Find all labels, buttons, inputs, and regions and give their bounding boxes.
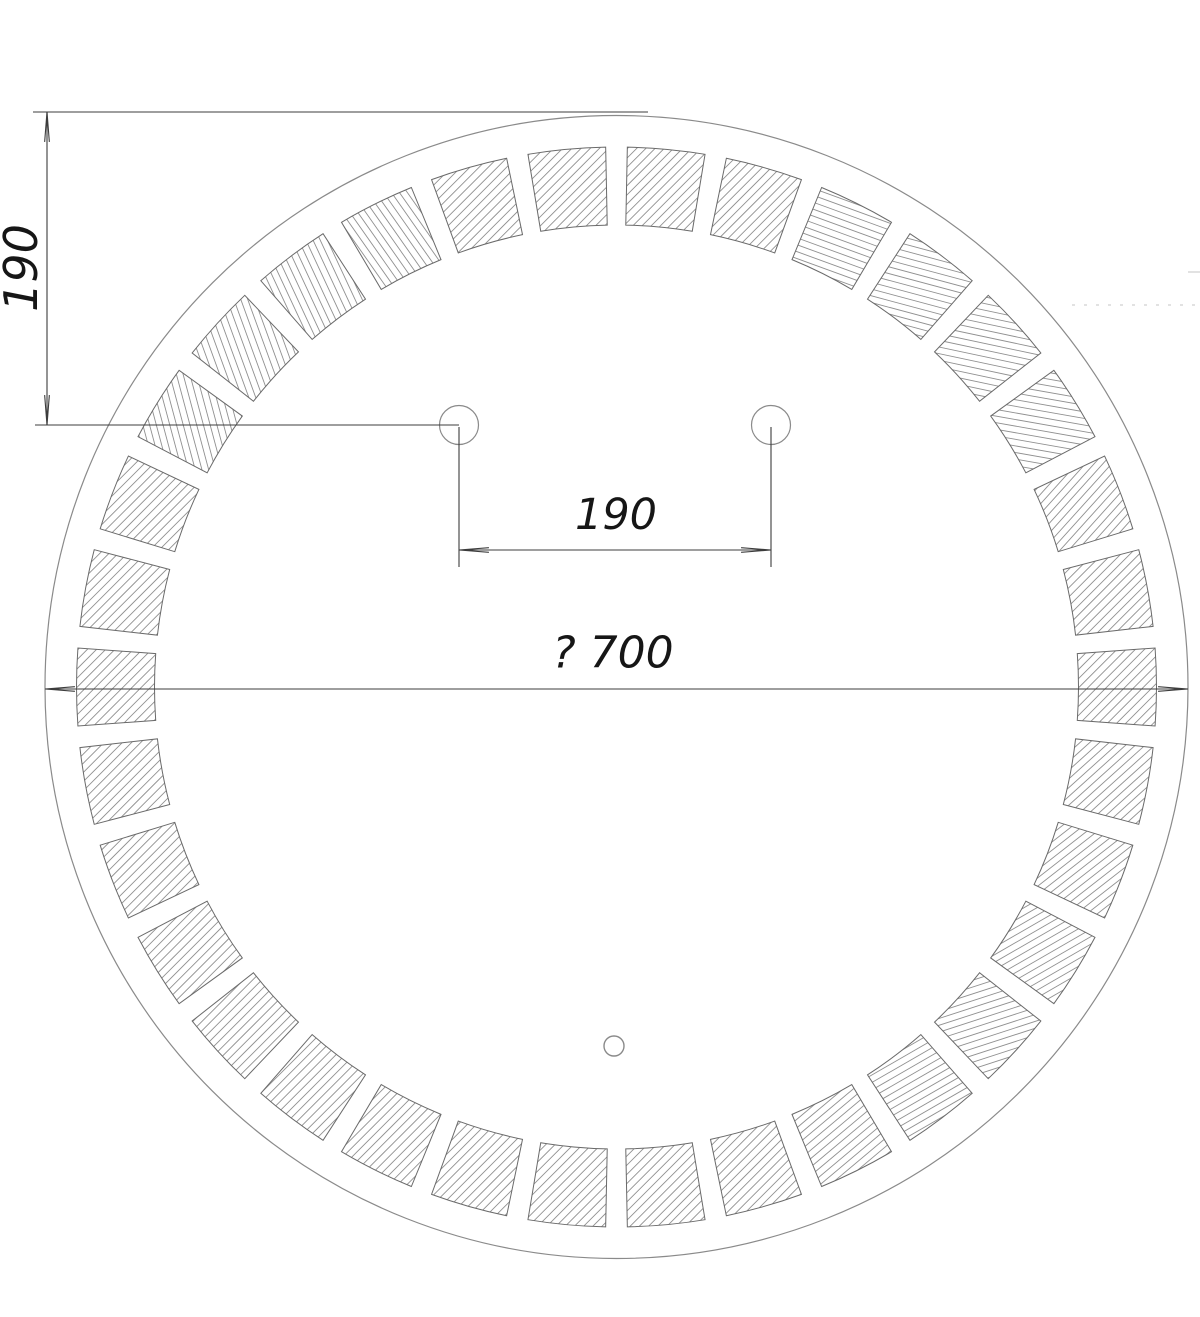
led-segment [159,257,332,442]
hatch-pattern [159,257,332,442]
led-segment [747,153,932,326]
led-segment [563,1086,761,1284]
hatch-pattern [107,334,271,513]
led-segment [984,770,1182,965]
hatch-pattern [957,347,1127,501]
drawing-sheet: 190 190 ? 700 [0,0,1200,1317]
hatch-pattern [1009,495,1200,693]
led-segment [24,495,222,693]
hatch-pattern [50,406,248,604]
hatch-pattern [829,206,1008,370]
led-segment [50,406,248,604]
led-segment-ring [16,88,1200,1284]
led-segment [900,271,1074,429]
led-segment [563,88,761,286]
hatch-pattern [900,271,1074,429]
hatch-pattern [24,679,222,877]
hatch-pattern [24,495,222,693]
hatch-pattern [984,770,1182,965]
led-segment [945,856,1140,1044]
led-segment [380,1069,578,1267]
dimension-diameter-700 [45,687,1188,692]
hatch-pattern [740,1037,938,1233]
dim-label-diameter: ? 700 [552,628,673,679]
hatch-pattern [1009,680,1200,877]
led-segment [1009,495,1200,693]
led-segment [471,1086,669,1284]
hatch-pattern [984,406,1181,604]
led-segment [740,1037,938,1233]
led-segment [829,206,1008,370]
dim-label-left-vertical: 190 [0,224,48,312]
mirror-outer-circle [45,116,1188,1259]
led-segment [984,406,1181,604]
hatch-pattern [747,153,932,326]
hatch-pattern [1018,587,1200,785]
dim-label-hole-spacing: 190 [575,490,657,540]
led-segment [471,88,669,286]
hatch-pattern [945,856,1140,1044]
hatch-pattern [471,88,669,286]
hatch-pattern [563,88,761,286]
led-segment [223,192,404,383]
led-segment [1018,587,1200,785]
hatch-pattern [380,1069,578,1267]
led-segment [107,334,271,513]
hatch-pattern [654,1069,852,1267]
hatch-pattern [563,1086,761,1284]
sensor-hole [604,1036,624,1056]
led-segment [957,347,1127,501]
led-segment [654,1069,852,1267]
led-segment [1009,680,1200,877]
led-segment [24,679,222,877]
hatch-pattern [223,192,404,383]
hatch-pattern [471,1086,669,1284]
